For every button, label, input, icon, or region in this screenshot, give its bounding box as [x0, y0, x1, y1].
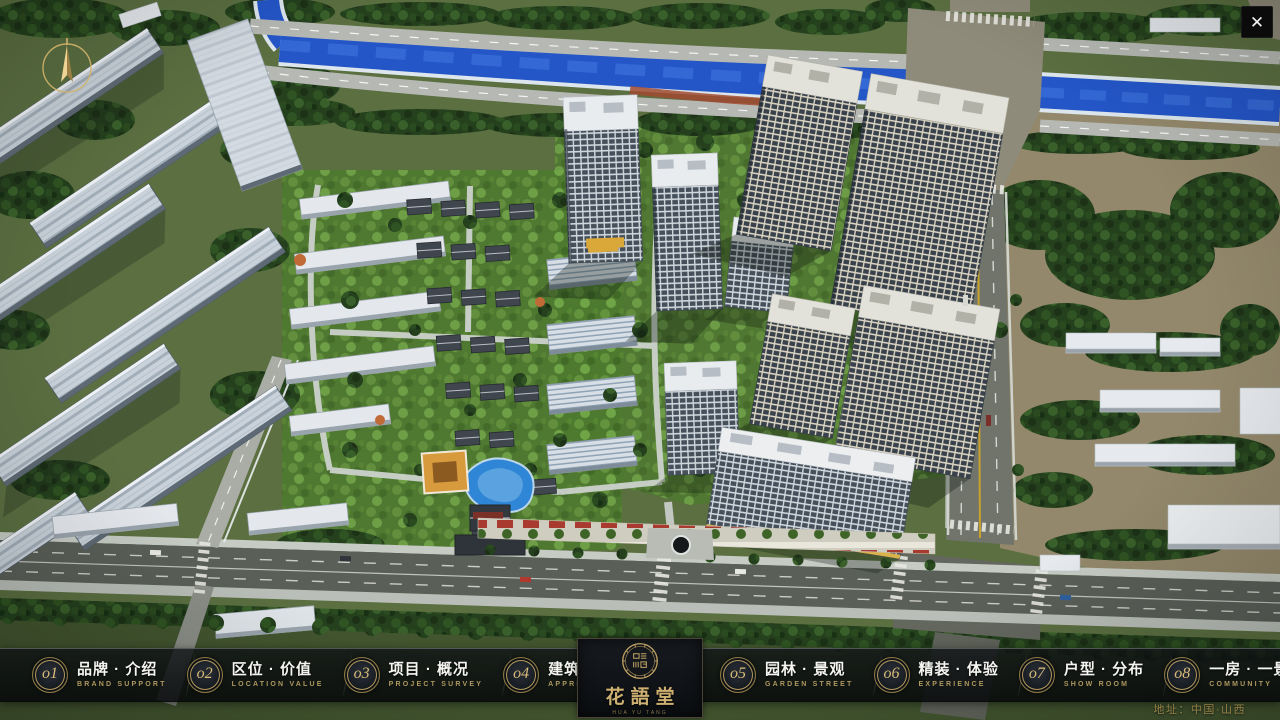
nav-label: 品牌 · 介绍: [77, 661, 167, 678]
nav-number-badge: o4: [503, 657, 539, 693]
nav-number-badge: o7: [1019, 657, 1055, 693]
close-button[interactable]: ✕: [1241, 6, 1273, 38]
nav-sublabel: EXPERIENCE: [919, 681, 999, 689]
nav-label: 园林 · 景观: [765, 661, 854, 678]
nav-item-brand-intro[interactable]: o1 品牌 · 介绍 BRAND SUPPORT: [22, 649, 177, 701]
nav-number-badge: o6: [874, 657, 910, 693]
nav-number-badge: o5: [720, 657, 756, 693]
nav-item-floorplans[interactable]: o7 户型 · 分布 SHOW ROOM: [1009, 649, 1154, 701]
nav-sublabel: PROJECT SURVEY: [389, 681, 483, 689]
nav-number-badge: o1: [32, 657, 68, 693]
nav-group-left: o1 品牌 · 介绍 BRAND SUPPORT o2 区位 · 价值 LOCA…: [22, 649, 570, 701]
nav-sublabel: COMMUNITY: [1209, 681, 1280, 689]
nav-label: 户型 · 分布: [1064, 661, 1144, 678]
masterplan-render: [0, 0, 1280, 720]
close-icon: ✕: [1250, 14, 1264, 31]
nav-label: 一房 · 一景: [1209, 661, 1280, 678]
app-window: ✕ o1 品牌 · 介绍 BRAND SUPPORT o2 区位 · 价值 LO…: [0, 0, 1280, 720]
project-subtitle: HUA YU TANG: [612, 710, 667, 716]
project-title: 花語堂: [605, 682, 680, 709]
project-logo-panel[interactable]: 花語堂 HUA YU TANG: [577, 638, 703, 718]
nav-item-garden-landscape[interactable]: o5 园林 · 景观 GARDEN STREET: [710, 649, 864, 701]
seal-emblem-icon: [620, 641, 660, 681]
nav-sublabel: GARDEN STREET: [765, 681, 854, 689]
nav-item-project-survey[interactable]: o3 项目 · 概况 PROJECT SURVEY: [334, 649, 493, 701]
nav-number-badge: o3: [344, 657, 380, 693]
nav-item-location-value[interactable]: o2 区位 · 价值 LOCATION VALUE: [177, 649, 334, 701]
project-address: 地址：中国·山西: [1153, 701, 1246, 717]
compass-icon: [36, 32, 98, 98]
nav-label: 区位 · 价值: [232, 661, 324, 678]
nav-item-room-view[interactable]: o8 一房 · 一景 COMMUNITY: [1154, 649, 1280, 701]
entrance-medallion: [672, 536, 690, 554]
nav-number-badge: o2: [187, 657, 223, 693]
nav-sublabel: BRAND SUPPORT: [77, 681, 167, 689]
nav-item-interior-experience[interactable]: o6 精装 · 体验 EXPERIENCE: [864, 649, 1009, 701]
nav-sublabel: LOCATION VALUE: [232, 681, 324, 689]
nav-label: 项目 · 概况: [389, 661, 483, 678]
nav-number-badge: o8: [1164, 657, 1200, 693]
nav-sublabel: SHOW ROOM: [1064, 681, 1144, 689]
nav-group-right: o5 园林 · 景观 GARDEN STREET o6 精装 · 体验 EXPE…: [710, 649, 1258, 701]
nav-label: 精装 · 体验: [919, 661, 999, 678]
